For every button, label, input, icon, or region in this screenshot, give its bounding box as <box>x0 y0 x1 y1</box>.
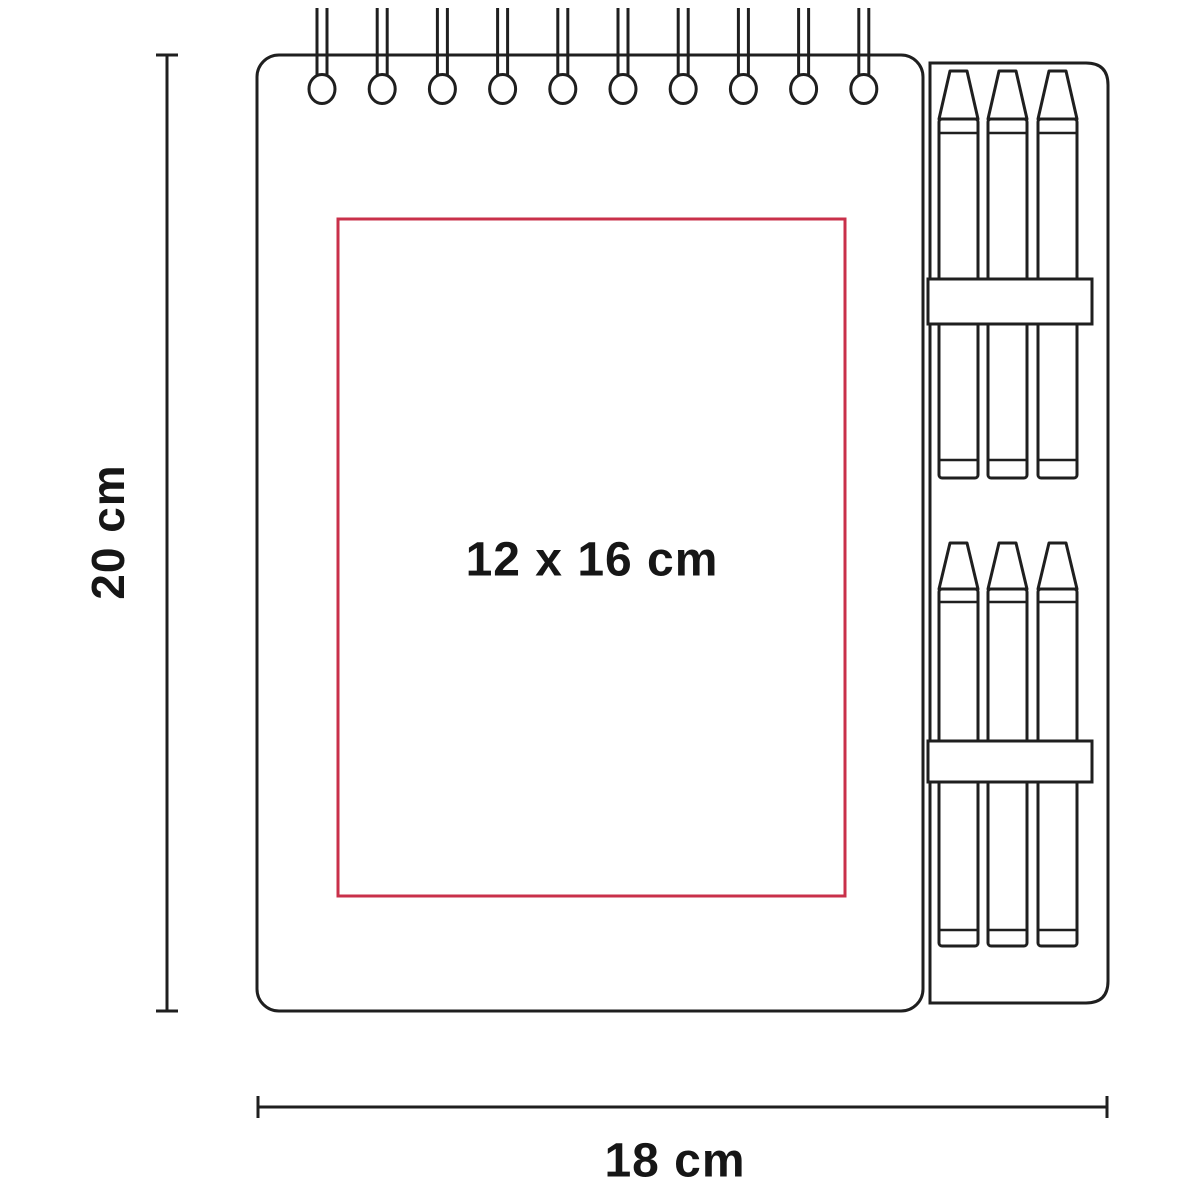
height-dimension-line <box>156 55 178 1011</box>
width-dimension-line <box>258 1096 1107 1118</box>
crayon <box>1038 71 1077 478</box>
ring-loop <box>791 75 817 104</box>
width-dimension-label: 18 cm <box>604 1134 745 1189</box>
ring-loop <box>309 75 335 104</box>
crayon <box>939 71 978 478</box>
ring-loop <box>730 75 756 104</box>
ring-loop <box>429 75 455 104</box>
ring-loop <box>550 75 576 104</box>
crayon-strap <box>928 741 1092 782</box>
ring-loop <box>490 75 516 104</box>
line-art <box>0 0 1200 1200</box>
height-dimension-label: 20 cm <box>81 464 135 599</box>
crayon-group <box>928 71 1092 478</box>
ring-loop <box>369 75 395 104</box>
product-dimension-diagram: 20 cm 12 x 16 cm 18 cm <box>0 0 1200 1200</box>
imprint-area-label: 12 x 16 cm <box>466 533 719 588</box>
ring-loop <box>670 75 696 104</box>
crayon-group <box>928 543 1092 946</box>
ring-loop <box>851 75 877 104</box>
crayon <box>988 71 1027 478</box>
crayon-strap <box>928 279 1092 324</box>
ring-loop <box>610 75 636 104</box>
